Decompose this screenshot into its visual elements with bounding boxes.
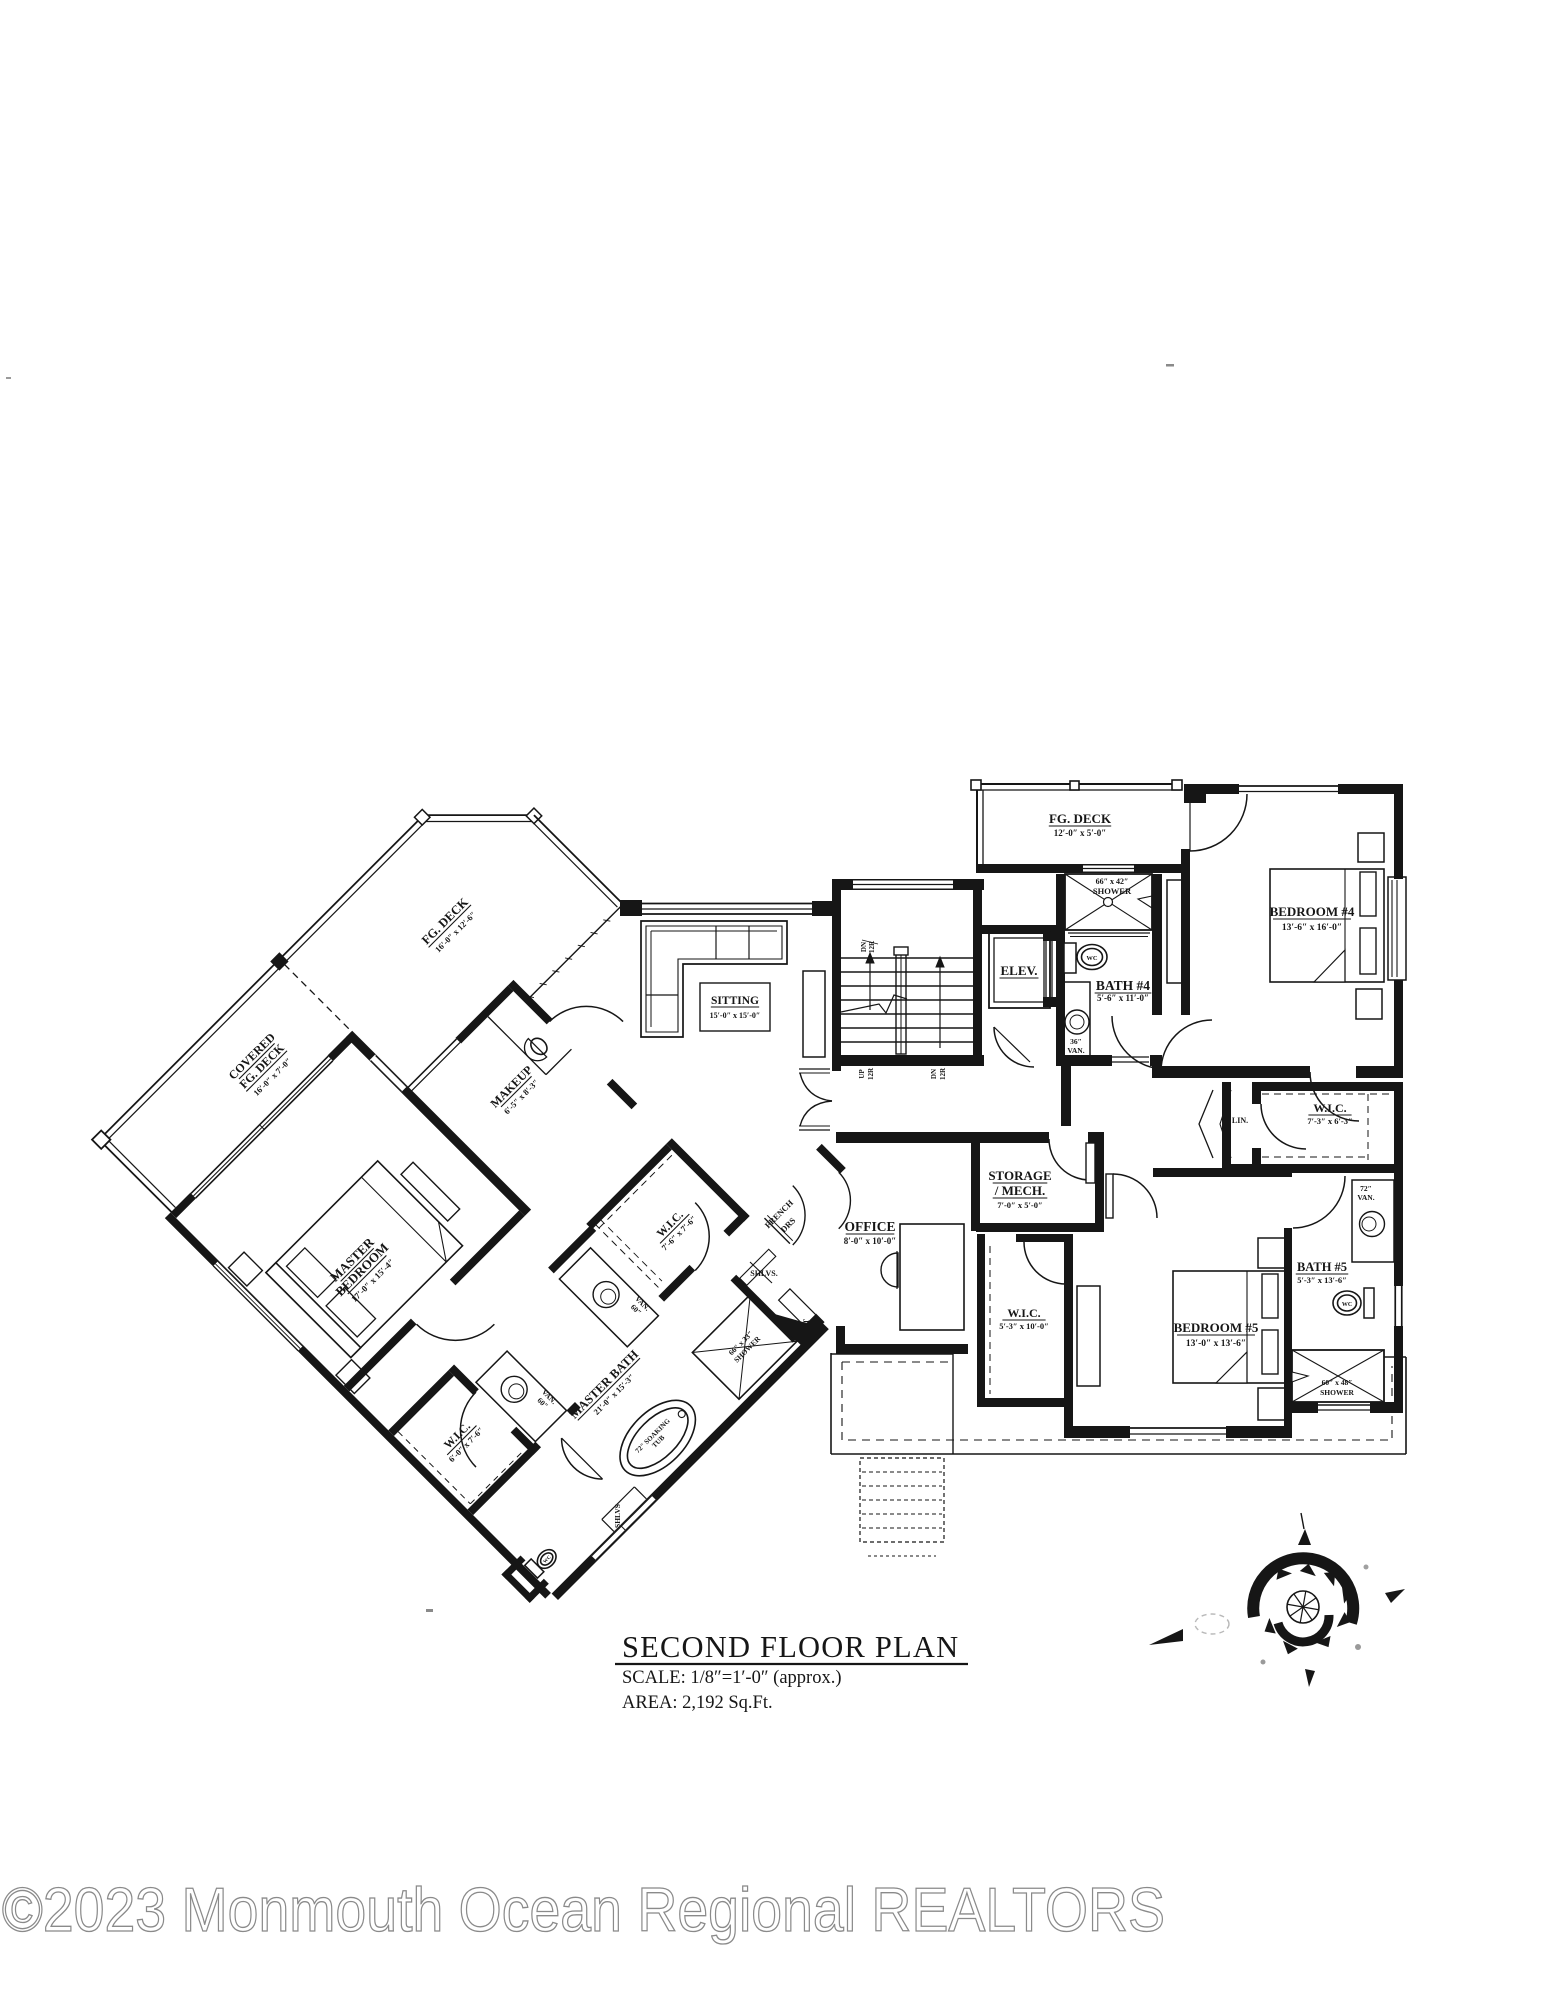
svg-text:12′-0″ x 5′-0″: 12′-0″ x 5′-0″ <box>1054 828 1107 838</box>
svg-text:BATH #4: BATH #4 <box>1096 978 1150 993</box>
svg-text:SHOWER: SHOWER <box>1320 1388 1354 1397</box>
svg-text:LIN.: LIN. <box>1232 1116 1248 1125</box>
svg-text:SECOND FLOOR PLAN: SECOND FLOOR PLAN <box>622 1630 959 1664</box>
svg-text:VAN.: VAN. <box>1067 1046 1084 1055</box>
svg-text:W.I.C.: W.I.C. <box>1007 1306 1040 1320</box>
svg-text:UP: UP <box>858 1069 866 1079</box>
svg-text:/ MECH.: / MECH. <box>994 1183 1046 1198</box>
svg-text:60″ x 48″: 60″ x 48″ <box>1322 1378 1353 1387</box>
svg-text:72″: 72″ <box>1360 1184 1372 1193</box>
svg-text:8′-0″ x 10′-0″: 8′-0″ x 10′-0″ <box>844 1236 897 1246</box>
svg-text:7′-3″ x 6′-3″: 7′-3″ x 6′-3″ <box>1307 1116 1352 1126</box>
svg-text:13′-6″ x 16′-0″: 13′-6″ x 16′-0″ <box>1282 923 1342 933</box>
svg-text:SITTING: SITTING <box>711 995 759 1007</box>
svg-text:5′-3″ x 13′-6″: 5′-3″ x 13′-6″ <box>1297 1275 1347 1285</box>
svg-text:5′-6″ x 11′-0″: 5′-6″ x 11′-0″ <box>1097 993 1149 1003</box>
svg-text:WC: WC <box>1086 955 1098 962</box>
svg-text:7′-0″ x 5′-0″: 7′-0″ x 5′-0″ <box>997 1200 1042 1210</box>
svg-text:5′-3″ x 10′-0″: 5′-3″ x 10′-0″ <box>999 1321 1049 1331</box>
svg-text:WC: WC <box>1342 1302 1352 1308</box>
svg-text:DN: DN <box>860 942 868 952</box>
svg-text:12R: 12R <box>867 1067 875 1080</box>
svg-text:AREA: 2,192 Sq.Ft.: AREA: 2,192 Sq.Ft. <box>622 1693 773 1713</box>
svg-text:15′-0″ x 15′-0″: 15′-0″ x 15′-0″ <box>710 1011 761 1020</box>
svg-text:BEDROOM #5: BEDROOM #5 <box>1174 1320 1259 1335</box>
svg-text:STORAGE: STORAGE <box>988 1168 1051 1183</box>
svg-text:12R: 12R <box>939 1067 947 1080</box>
svg-text:36″: 36″ <box>1070 1037 1082 1046</box>
svg-text:13′-0″ x 13′-6″: 13′-0″ x 13′-6″ <box>1186 1339 1246 1349</box>
svg-text:ELEV.: ELEV. <box>1001 963 1038 978</box>
svg-text:W.I.C.: W.I.C. <box>1313 1101 1346 1115</box>
svg-text:OFFICE: OFFICE <box>844 1219 895 1234</box>
svg-text:SCALE: 1/8″=1′-0″ (approx.): SCALE: 1/8″=1′-0″ (approx.) <box>622 1668 842 1688</box>
svg-text:BATH #5: BATH #5 <box>1297 1260 1347 1274</box>
svg-text:©2023 Monmouth Ocean Regional: ©2023 Monmouth Ocean Regional REALTORS <box>2 1876 1165 1945</box>
svg-text:FG. DECK: FG. DECK <box>1049 811 1112 826</box>
svg-text:VAN.: VAN. <box>1357 1193 1374 1202</box>
svg-text:SHOWER: SHOWER <box>1093 886 1132 896</box>
svg-text:SHLVS.: SHLVS. <box>750 1269 778 1278</box>
svg-text:66″ x 42″: 66″ x 42″ <box>1096 877 1129 886</box>
svg-text:DN: DN <box>930 1069 938 1079</box>
svg-text:BEDROOM #4: BEDROOM #4 <box>1270 904 1355 919</box>
